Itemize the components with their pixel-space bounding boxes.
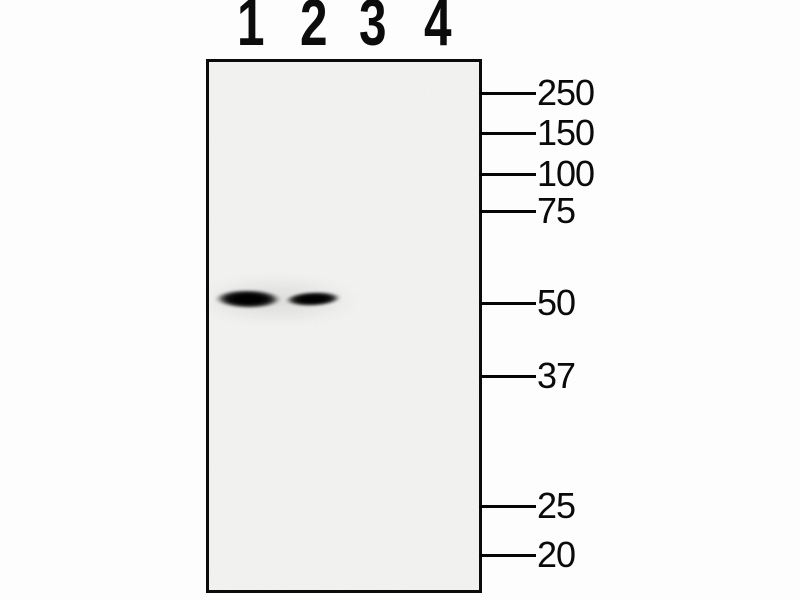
ladder-tick-50	[479, 302, 536, 305]
ladder-row-50: 50	[479, 283, 575, 323]
ladder-row-250: 250	[479, 73, 594, 113]
ladder-row-75: 75	[479, 191, 575, 231]
ladder-label-37: 37	[537, 358, 575, 394]
membrane-noise-texture	[209, 62, 479, 590]
ladder-label-50: 50	[537, 285, 575, 321]
ladder-row-25: 25	[479, 486, 575, 526]
ladder-row-37: 37	[479, 356, 575, 396]
lane-label-3: 3	[353, 0, 391, 55]
ladder-label-150: 150	[537, 115, 594, 151]
lane-label-2: 2	[294, 0, 332, 55]
ladder-label-100: 100	[537, 156, 594, 192]
lane-label-1: 1	[231, 0, 269, 55]
ladder-row-150: 150	[479, 113, 594, 153]
ladder-row-20: 20	[479, 535, 575, 575]
band-lane-1	[215, 290, 281, 309]
lane-label-4: 4	[418, 0, 456, 55]
ladder-tick-250	[479, 92, 536, 95]
ladder-label-20: 20	[537, 537, 575, 573]
ladder-row-100: 100	[479, 154, 594, 194]
blot-panel	[206, 59, 482, 593]
ladder-tick-100	[479, 173, 536, 176]
ladder-label-25: 25	[537, 488, 575, 524]
ladder-label-75: 75	[537, 193, 575, 229]
ladder-tick-37	[479, 375, 536, 378]
ladder-label-250: 250	[537, 75, 594, 111]
ladder-tick-75	[479, 210, 536, 213]
ladder-tick-20	[479, 554, 536, 557]
ladder-tick-25	[479, 505, 536, 508]
ladder-tick-150	[479, 132, 536, 135]
